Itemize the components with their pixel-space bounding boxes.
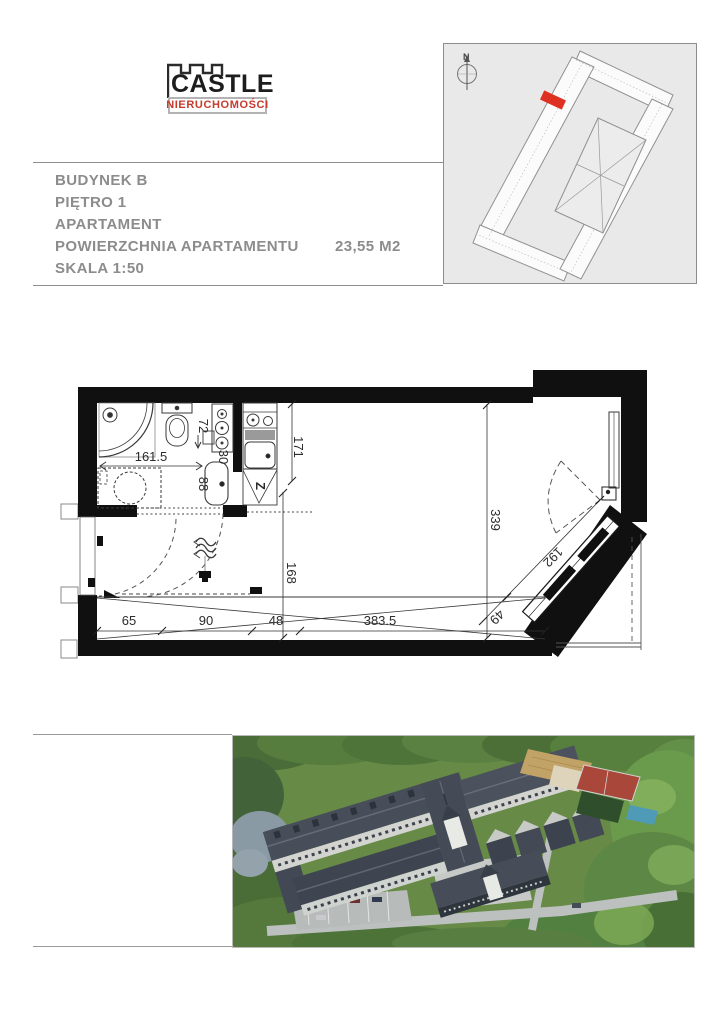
info-unit-type: APARTAMENT: [55, 214, 435, 236]
balcony-door-swing: [548, 461, 600, 533]
dim-171: 171: [291, 436, 306, 458]
info-scale: SKALA 1:50: [55, 258, 435, 280]
info-floor: PIĘTRO 1: [55, 192, 435, 214]
dim-72: 72: [196, 419, 211, 433]
info-building: BUDYNEK B: [55, 170, 435, 192]
info-area-line: POWIERZCHNIA APARTAMENTU 23,55 M2: [55, 236, 435, 258]
logo-subtitle-box: NIERUCHOMOŚCI: [168, 97, 267, 114]
dim-383-5: 383.5: [364, 613, 397, 628]
dim-30: 30: [216, 450, 231, 464]
dim-88: 88: [196, 477, 211, 491]
floor-plan-document-page: { "logo": { "title": "CASTLE", "subtitle…: [0, 0, 723, 1024]
wardrobe-strip: [97, 597, 545, 639]
toilet: [162, 403, 192, 446]
header-divider-top: [33, 162, 443, 163]
info-area-value: 23,55 M2: [335, 236, 401, 258]
dim-48: 48: [269, 613, 283, 628]
apartment-floor-plan: Z: [55, 355, 670, 670]
info-area-label: POWIERZCHNIA APARTAMENTU: [55, 238, 299, 255]
dim-90: 90: [199, 613, 213, 628]
header-divider-bottom: [33, 285, 443, 286]
dim-339: 339: [488, 509, 503, 531]
kitchen-sink: [245, 442, 275, 468]
sink-symbol-label: Z: [253, 482, 268, 490]
photo-bottom-rule: [33, 946, 232, 947]
radiator: [609, 412, 619, 488]
dimension-lines: [97, 403, 600, 638]
cooktop: [212, 404, 233, 452]
castle-logo: CASTLE NIERUCHOMOŚCI: [167, 63, 279, 117]
dim-49: 49: [487, 607, 508, 628]
washbasin: [203, 431, 228, 505]
aerial-photo: [232, 735, 695, 948]
logo-subtitle: NIERUCHOMOŚCI: [166, 100, 269, 111]
logo-title: CASTLE: [171, 72, 274, 97]
washing-machine: [98, 468, 161, 508]
switch-symbol: [97, 536, 103, 546]
door-hinge-block: [602, 487, 616, 500]
heating-riser-symbol: [194, 538, 216, 582]
site-plan: N: [443, 43, 697, 284]
dim-65: 65: [122, 613, 136, 628]
dim-bath-width: 161.5: [135, 449, 168, 464]
dim-168: 168: [284, 562, 299, 584]
door-swing-arcs: [99, 514, 223, 597]
apartment-info-block: BUDYNEK B PIĘTRO 1 APARTAMENT POWIERZCHN…: [55, 170, 435, 280]
exterior-sills: [61, 504, 78, 658]
photo-top-rule: [33, 734, 232, 735]
